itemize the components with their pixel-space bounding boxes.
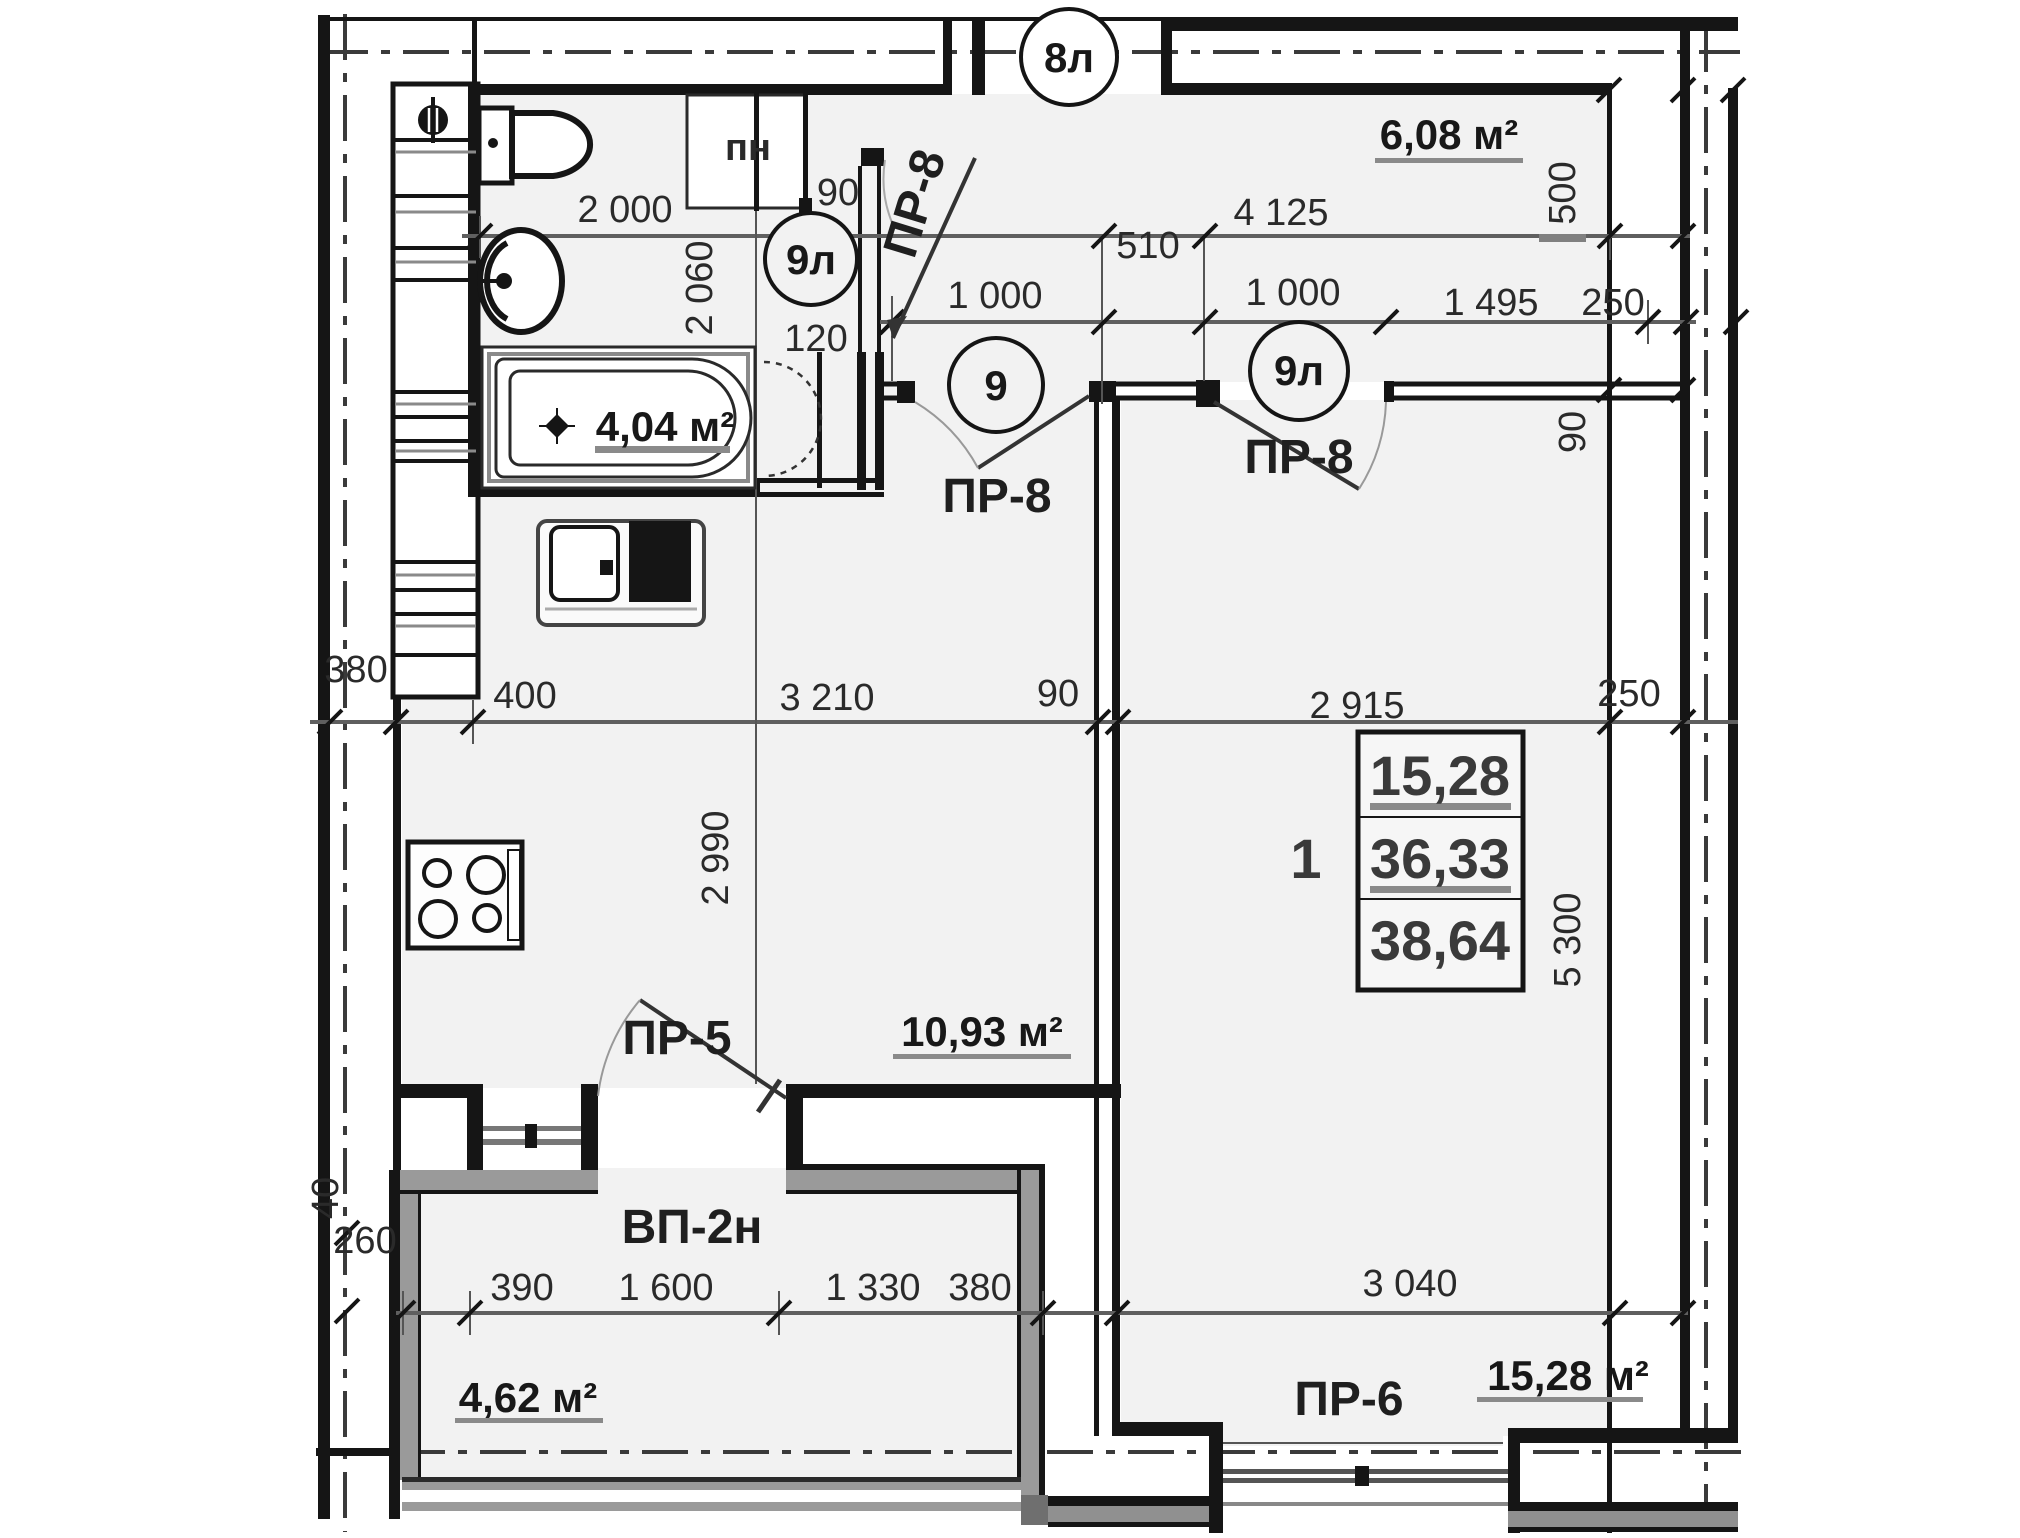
svg-text:36,33: 36,33	[1370, 827, 1510, 890]
svg-text:2 990: 2 990	[695, 810, 737, 905]
svg-text:380: 380	[948, 1267, 1011, 1309]
svg-text:260: 260	[333, 1220, 396, 1262]
svg-text:38,64: 38,64	[1370, 909, 1510, 972]
svg-text:3 210: 3 210	[779, 677, 874, 719]
svg-text:400: 400	[493, 675, 556, 717]
svg-text:9л: 9л	[786, 236, 836, 283]
svg-text:ПР-5: ПР-5	[622, 1012, 731, 1065]
svg-text:90: 90	[1552, 411, 1594, 453]
svg-text:1 000: 1 000	[1245, 272, 1340, 314]
svg-text:ПР-8: ПР-8	[1244, 431, 1353, 484]
svg-text:8л: 8л	[1044, 34, 1094, 81]
svg-text:ПР-6: ПР-6	[1294, 1373, 1403, 1426]
svg-text:9л: 9л	[1274, 347, 1324, 394]
svg-text:90: 90	[817, 172, 859, 214]
svg-text:4 125: 4 125	[1233, 192, 1328, 234]
svg-text:1 495: 1 495	[1443, 282, 1538, 324]
svg-text:1 000: 1 000	[947, 275, 1042, 317]
svg-text:380: 380	[324, 649, 387, 691]
svg-text:4,04 м²: 4,04 м²	[596, 403, 734, 450]
svg-text:ВП-2н: ВП-2н	[622, 1201, 763, 1254]
svg-text:1 600: 1 600	[618, 1267, 713, 1309]
svg-text:510: 510	[1116, 225, 1179, 267]
svg-text:15,28 м²: 15,28 м²	[1487, 1352, 1649, 1399]
svg-text:9: 9	[984, 362, 1007, 409]
svg-text:250: 250	[1597, 673, 1660, 715]
svg-text:2 000: 2 000	[577, 189, 672, 231]
svg-text:ПР-8: ПР-8	[942, 470, 1051, 523]
svg-text:120: 120	[784, 318, 847, 360]
svg-text:3 040: 3 040	[1362, 1263, 1457, 1305]
svg-text:пн: пн	[725, 127, 771, 169]
svg-text:40: 40	[305, 1177, 347, 1219]
svg-text:1: 1	[1290, 827, 1321, 890]
svg-text:2 915: 2 915	[1309, 685, 1404, 727]
svg-text:4,62 м²: 4,62 м²	[459, 1374, 597, 1421]
svg-text:15,28: 15,28	[1370, 744, 1510, 807]
svg-text:6,08 м²: 6,08 м²	[1380, 111, 1518, 158]
svg-text:2 060: 2 060	[679, 240, 721, 335]
svg-text:250: 250	[1581, 282, 1644, 324]
svg-text:1 330: 1 330	[825, 1267, 920, 1309]
svg-text:500: 500	[1542, 161, 1584, 224]
svg-text:90: 90	[1037, 673, 1079, 715]
svg-text:10,93 м²: 10,93 м²	[901, 1008, 1063, 1055]
svg-text:390: 390	[490, 1267, 553, 1309]
svg-text:5 300: 5 300	[1547, 892, 1589, 987]
